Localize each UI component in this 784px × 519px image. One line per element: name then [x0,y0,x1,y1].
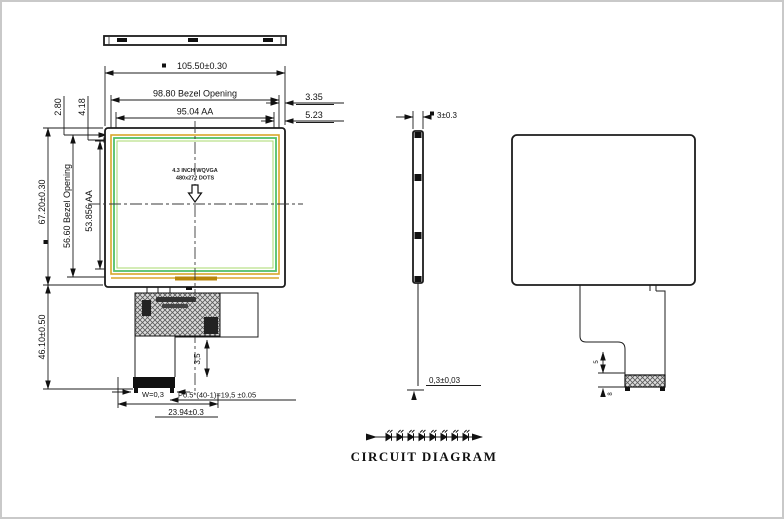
dim-overall-height: 67.20±0.30 [37,180,47,225]
square-symbol [430,112,434,116]
tape-mark [188,38,198,42]
dim-tab-width: W=0,3 [142,390,164,399]
back-module-outline [512,135,695,285]
fpc-component [142,300,151,316]
dim-bezel-width: 98.80 Bezel Opening [153,89,237,99]
dim-right-offset-aa: 5.23 [305,110,323,120]
dim-fpc-thickness: 0,3±0,03 [429,376,461,385]
tape-mark [117,38,127,42]
back-connector [625,375,665,387]
lcd-module-drawing: 105.50±0.30 98.80 Bezel Opening 95.04 AA… [0,0,784,519]
fpc-print-text [156,297,196,302]
square-symbol [162,64,166,68]
dim-aa-width: 95.04 AA [177,107,214,117]
dim-right-offset-bezel: 3.35 [305,92,323,102]
tape-mark [263,38,273,42]
dim-fpc-fold: 3,5 [193,353,202,365]
dim-top-offset-aa: 4.18 [77,98,87,116]
drawing-canvas: 105.50±0.30 98.80 Bezel Opening 95.04 AA… [0,0,784,519]
label-bar [175,277,217,281]
dim-thickness: 3±0.3 [437,111,458,120]
dim-top-offset-bezel: 2.80 [53,98,63,116]
dim-module-height-with-fpc: 46.10±0.50 [37,315,47,360]
fpc-component [204,317,218,334]
dim-bezel-height: 56.60 Bezel Opening [62,164,72,248]
circuit-diagram-title: CIRCUIT DIAGRAM [351,449,498,464]
dim-overall-width: 105.50±0.30 [177,61,227,71]
dim-aa-height: 53.856 AA [84,190,94,232]
dim-pin-pitch: P0.5*(40-1)=19,5 ±0.05 [178,391,256,400]
square-symbol [44,240,48,244]
center-label-line1: 4.3 INCH WQVGA [172,168,218,174]
connector-bar [133,377,175,388]
top-strip-view [104,36,286,45]
dim-connector-width: 23.94±0.3 [168,408,204,417]
fpc-print-text [162,304,188,308]
center-label-line2: 480x272 DOTS [176,176,215,182]
